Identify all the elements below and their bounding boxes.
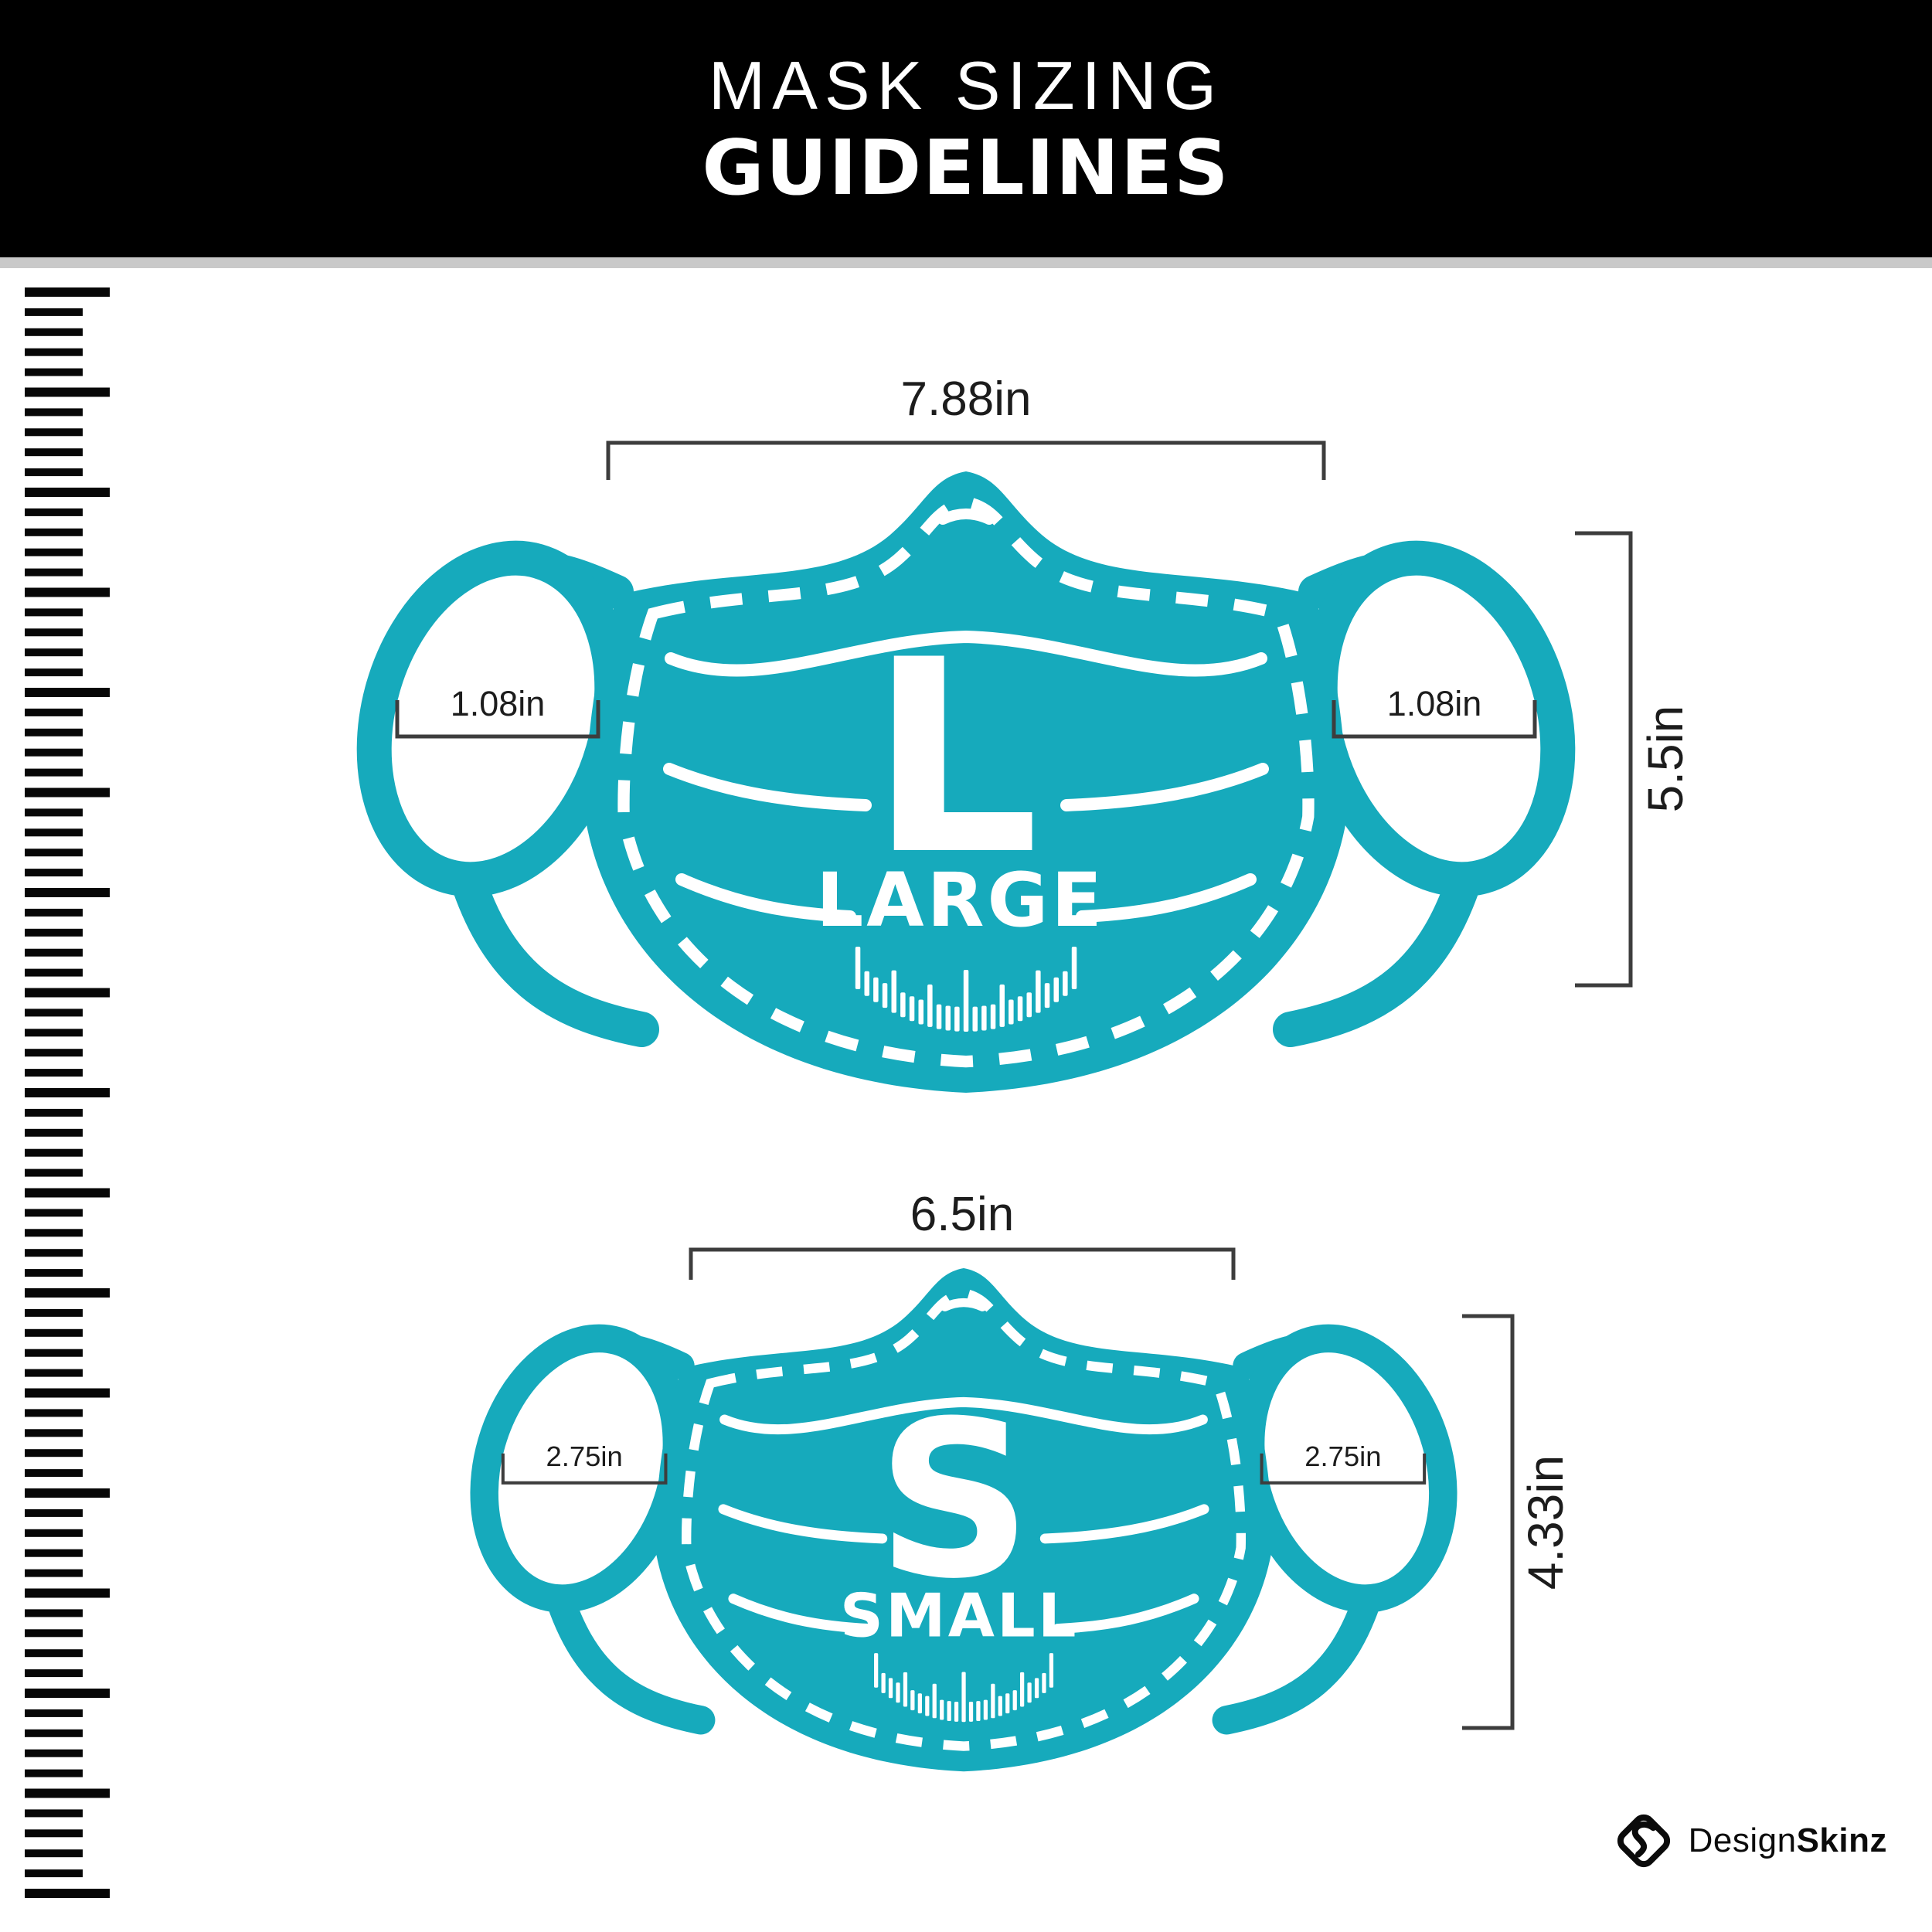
designskinz-diamond-icon [1610, 1807, 1678, 1875]
small-left-ear-label: 2.75in [546, 1440, 622, 1472]
small-height-label: 4.33in [1518, 1455, 1573, 1590]
ruler-graphic [25, 287, 110, 1898]
small-width-label: 6.5in [910, 1188, 1014, 1241]
infographic-canvas: MASK SIZING GUIDELINES [0, 0, 1932, 1932]
mask-diagram: L LARGE 1.08in 1.08in 7.88in 5.5in S SMA… [0, 0, 1932, 1932]
large-mask-size-name: LARGE [816, 857, 1105, 944]
large-mask-group: L LARGE 1.08in 1.08in [338, 471, 1594, 1093]
large-right-ear-label: 1.08in [1387, 684, 1482, 723]
small-mask-size-name: SMALL [840, 1581, 1079, 1651]
brand-logo: DesignSkinz [1610, 1807, 1887, 1875]
large-height-label: 5.5in [1638, 706, 1693, 813]
small-mask-group: S SMALL 2.75in 2.75in [455, 1268, 1473, 1771]
small-right-ear-label: 2.75in [1304, 1440, 1381, 1472]
brand-name-bold: Skinz [1797, 1821, 1887, 1859]
brand-name: DesignSkinz [1689, 1821, 1887, 1860]
small-height-bracket [1462, 1316, 1512, 1728]
brand-name-regular: Design [1689, 1821, 1797, 1859]
large-height-bracket [1575, 533, 1631, 985]
large-left-ear-label: 1.08in [451, 684, 546, 723]
large-width-label: 7.88in [901, 372, 1032, 426]
